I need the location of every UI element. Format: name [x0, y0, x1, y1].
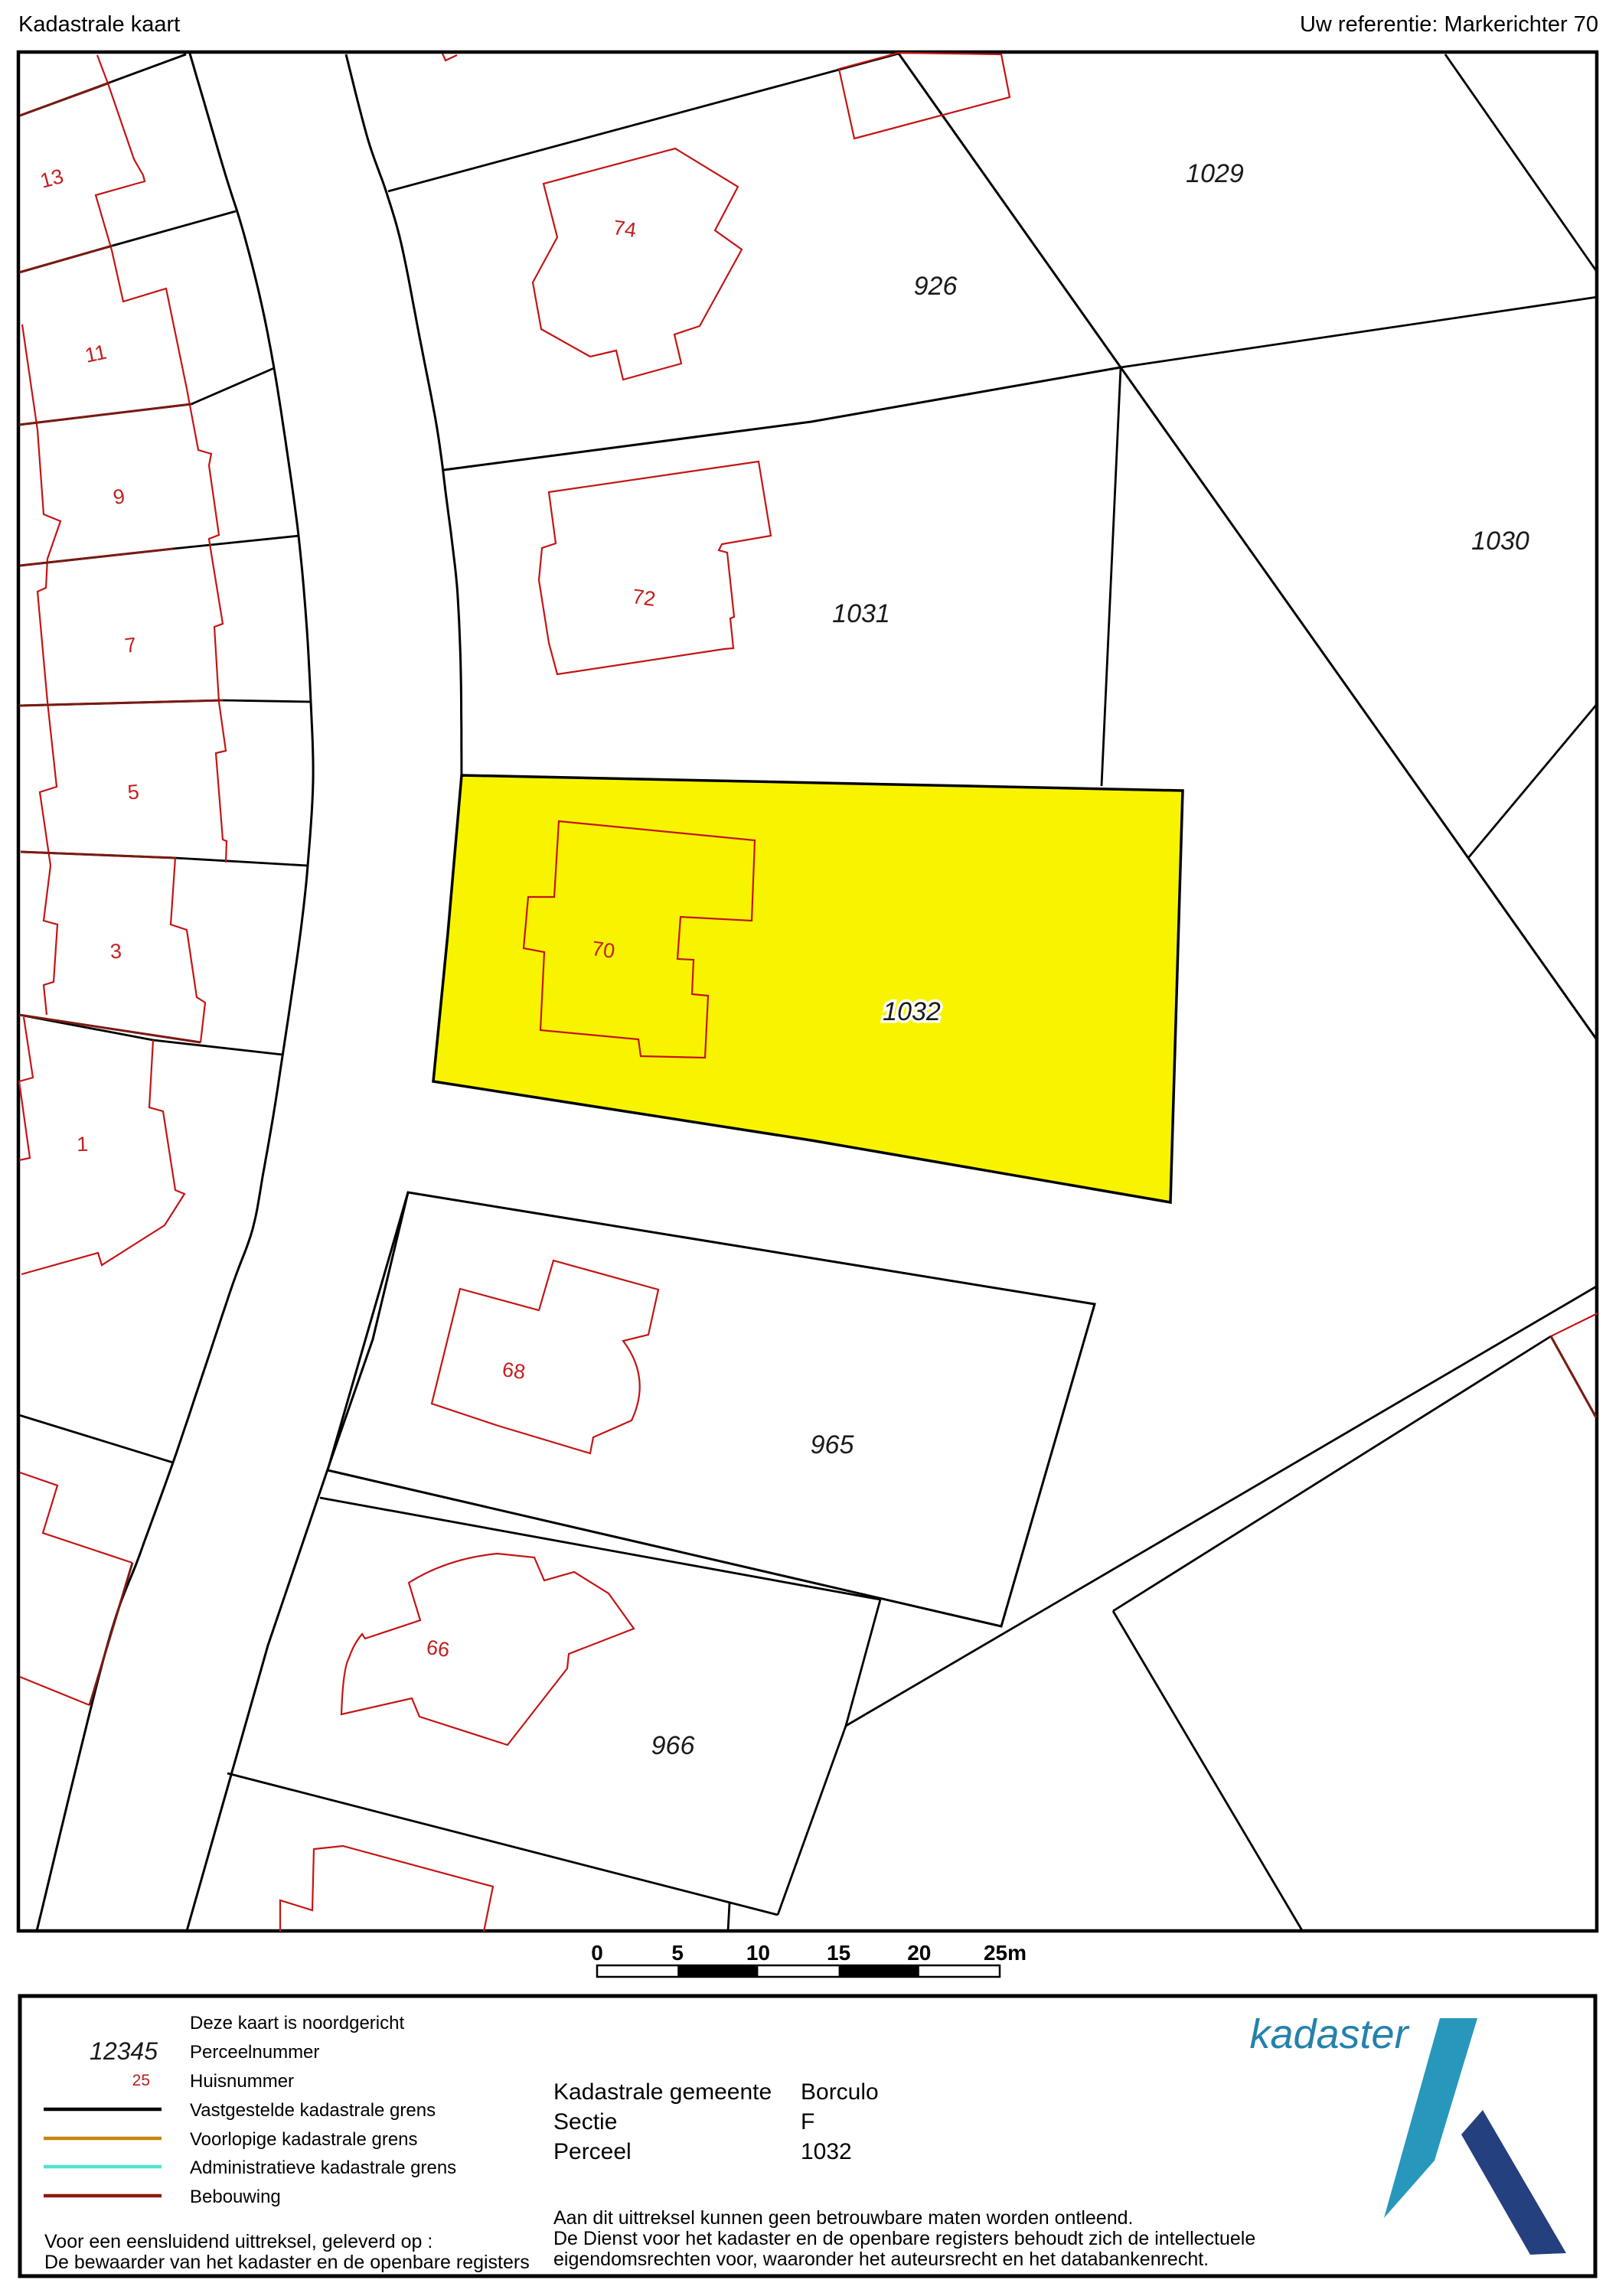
svg-text:1: 1 [77, 1133, 89, 1156]
svg-text:72: 72 [631, 585, 657, 611]
svg-text:68: 68 [501, 1358, 527, 1384]
svg-text:Kadastrale gemeente: Kadastrale gemeente [553, 2079, 772, 2105]
svg-text:kadaster: kadaster [1249, 2011, 1409, 2057]
svg-text:1031: 1031 [832, 599, 890, 628]
svg-text:De bewaarder van het kadaster: De bewaarder van het kadaster en de open… [44, 2252, 530, 2273]
svg-text:1029: 1029 [1186, 159, 1244, 188]
svg-text:1032: 1032 [801, 2139, 852, 2164]
svg-text:Borculo: Borculo [801, 2079, 879, 2105]
svg-text:926: 926 [914, 272, 958, 301]
svg-text:20: 20 [907, 1941, 931, 1965]
svg-text:Voorlopige kadastrale grens: Voorlopige kadastrale grens [190, 2129, 418, 2150]
svg-text:1030: 1030 [1471, 527, 1529, 556]
svg-text:965: 965 [811, 1430, 854, 1459]
svg-text:74: 74 [612, 216, 638, 242]
svg-text:Perceel: Perceel [553, 2139, 632, 2164]
svg-text:eigendomsrechten voor, waarond: eigendomsrechten voor, waaronder het aut… [553, 2249, 1209, 2270]
svg-text:10: 10 [746, 1941, 770, 1965]
svg-text:Administratieve kadastrale gre: Administratieve kadastrale grens [190, 2157, 456, 2178]
svg-text:15: 15 [827, 1941, 850, 1965]
svg-text:70: 70 [590, 937, 616, 963]
svg-text:Kadastrale kaart: Kadastrale kaart [18, 12, 180, 37]
svg-text:Bebouwing: Bebouwing [190, 2187, 281, 2207]
svg-text:Aan dit uittreksel kunnen geen: Aan dit uittreksel kunnen geen betrouwba… [553, 2207, 1133, 2229]
svg-text:Uw referentie: Markerichter 70: Uw referentie: Markerichter 70 [1300, 12, 1598, 37]
svg-text:De Dienst voor het kadaster en: De Dienst voor het kadaster en de openba… [553, 2228, 1255, 2249]
svg-text:5: 5 [671, 1941, 684, 1965]
svg-text:Vastgestelde kadastrale grens: Vastgestelde kadastrale grens [190, 2100, 436, 2121]
svg-text:1032: 1032 [883, 997, 941, 1026]
svg-text:Huisnummer: Huisnummer [190, 2071, 294, 2092]
svg-text:25: 25 [132, 2072, 150, 2089]
svg-text:Deze kaart is noordgericht: Deze kaart is noordgericht [190, 2013, 404, 2033]
svg-text:Perceelnummer: Perceelnummer [190, 2042, 319, 2063]
svg-text:Sectie: Sectie [553, 2109, 617, 2135]
svg-text:66: 66 [425, 1636, 451, 1662]
svg-text:0: 0 [591, 1941, 603, 1965]
svg-text:25m: 25m [984, 1941, 1027, 1965]
svg-text:12345: 12345 [90, 2037, 158, 2065]
svg-text:3: 3 [109, 940, 122, 964]
svg-text:5: 5 [126, 780, 140, 804]
svg-text:966: 966 [651, 1731, 695, 1760]
svg-text:Voor een eensluidend uittrekse: Voor een eensluidend uittreksel, gelever… [44, 2231, 432, 2252]
svg-text:F: F [801, 2109, 814, 2135]
